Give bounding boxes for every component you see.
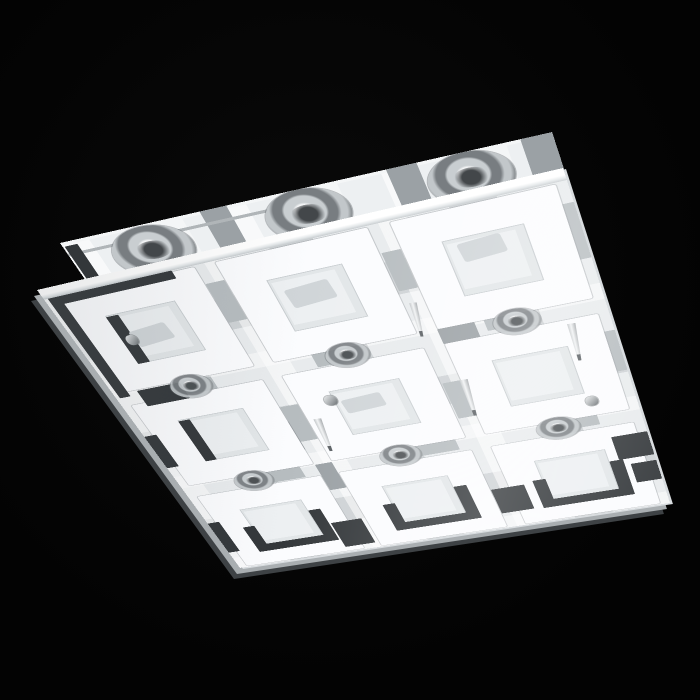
accent-square: [611, 431, 654, 460]
ring-hole: [491, 346, 585, 407]
accent-square: [631, 460, 662, 483]
product-photo-scene: [0, 0, 700, 700]
